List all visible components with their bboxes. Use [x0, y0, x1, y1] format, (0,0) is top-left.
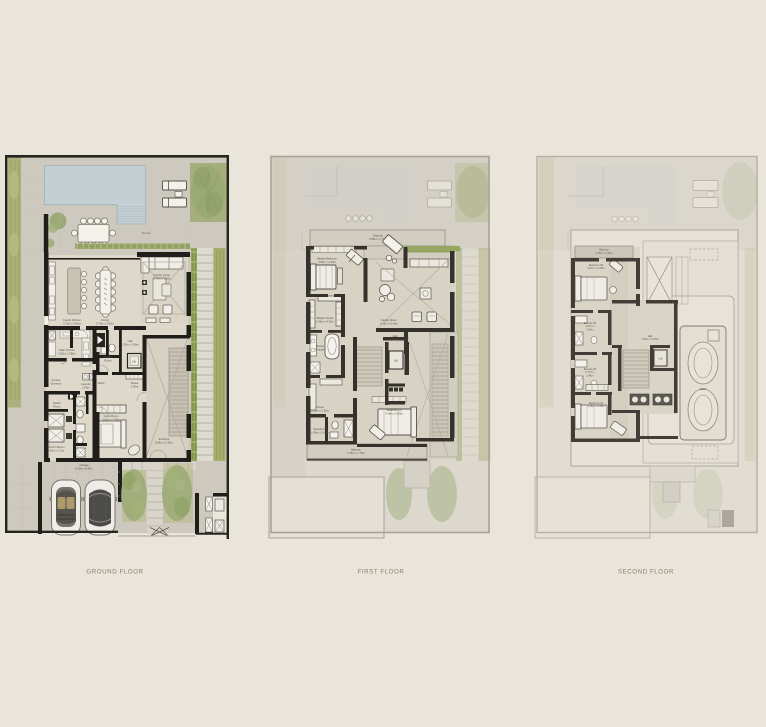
- svg-text:Wash: Wash: [98, 381, 105, 385]
- svg-text:2.46m: 2.46m: [586, 327, 593, 331]
- svg-text:Main Kitchen: Main Kitchen: [59, 348, 75, 352]
- svg-text:Master Closet: Master Closet: [317, 316, 334, 320]
- svg-text:2.00m x 2.2m: 2.00m x 2.2m: [48, 448, 65, 452]
- svg-text:1.80m x 2.35m: 1.80m x 2.35m: [311, 408, 330, 412]
- svg-text:3.07m x 4.45m: 3.07m x 4.45m: [587, 266, 604, 270]
- svg-text:Family Living: Family Living: [154, 273, 170, 277]
- svg-text:Lift: Lift: [658, 357, 662, 361]
- svg-text:Terrace: Terrace: [141, 231, 151, 235]
- svg-text:5.70m x 3.90m: 5.70m x 3.90m: [63, 321, 82, 325]
- svg-text:Lift: Lift: [132, 360, 136, 364]
- svg-text:Powder: Powder: [103, 355, 112, 359]
- svg-text:Entrance: Entrance: [51, 381, 62, 385]
- svg-text:1.90m x 2.65m: 1.90m x 2.65m: [311, 430, 330, 434]
- svg-text:Bedroom 03: Bedroom 03: [387, 408, 402, 412]
- svg-text:Balcony: Balcony: [351, 448, 361, 452]
- svg-text:Closet: Closet: [316, 405, 324, 409]
- svg-text:Hall: Hall: [128, 339, 133, 343]
- svg-text:5.70m x 3.90m: 5.70m x 3.90m: [153, 276, 172, 280]
- svg-text:Hall: Hall: [393, 334, 398, 338]
- svg-text:Lift: Lift: [394, 359, 398, 363]
- svg-text:GROUND FLOOR: GROUND FLOOR: [86, 569, 143, 576]
- svg-text:Guest Room: Guest Room: [103, 414, 119, 418]
- svg-text:1.90m x 5.45m: 1.90m x 5.45m: [641, 337, 658, 341]
- svg-text:1.90m x 7.45m: 1.90m x 7.45m: [390, 337, 409, 341]
- svg-text:Garage: Garage: [80, 463, 89, 467]
- svg-text:8.96m x 2.35m: 8.96m x 2.35m: [155, 440, 174, 444]
- svg-text:Balcony: Balcony: [373, 234, 383, 238]
- svg-text:Family Room: Family Room: [381, 318, 398, 322]
- svg-text:Maid's: Maid's: [53, 401, 61, 405]
- svg-text:Closet: Closet: [131, 381, 139, 385]
- svg-text:Ensuite 03: Ensuite 03: [314, 427, 327, 431]
- svg-text:Laundry: Laundry: [81, 382, 91, 386]
- svg-text:2.05m: 2.05m: [82, 385, 90, 389]
- svg-text:Driver's Room: Driver's Room: [48, 445, 66, 449]
- svg-text:Room: Room: [104, 358, 112, 362]
- svg-text:2.00m: 2.00m: [131, 384, 139, 388]
- svg-text:2.20m x 2.80m: 2.20m x 2.80m: [121, 342, 140, 346]
- svg-text:Dining: Dining: [101, 318, 109, 322]
- svg-text:Entrance: Entrance: [159, 437, 170, 441]
- svg-text:2.46m: 2.46m: [586, 373, 593, 377]
- svg-text:5.15m x 5.46m: 5.15m x 5.46m: [380, 321, 399, 325]
- svg-text:1.35m x 7.75m: 1.35m x 7.75m: [347, 451, 366, 455]
- svg-text:Master Bedroom: Master Bedroom: [317, 257, 338, 261]
- svg-text:SECOND FLOOR: SECOND FLOOR: [618, 569, 674, 576]
- svg-text:Family Kitchen: Family Kitchen: [63, 318, 81, 322]
- svg-text:FIRST FLOOR: FIRST FLOOR: [358, 569, 405, 576]
- svg-text:MEP: MEP: [700, 387, 707, 391]
- svg-text:Room: Room: [53, 404, 61, 408]
- svg-text:Master: Master: [316, 344, 324, 348]
- svg-text:3.46m x 4.45m: 3.46m x 4.45m: [587, 404, 604, 408]
- svg-text:Ensuite: Ensuite: [316, 347, 325, 351]
- svg-text:3.40m x 4.30m: 3.40m x 4.30m: [385, 411, 404, 415]
- svg-text:5.70m x 2.90m: 5.70m x 2.90m: [96, 321, 115, 325]
- svg-text:1.30m x 4.30m: 1.30m x 4.30m: [595, 251, 612, 255]
- svg-text:Service: Service: [52, 378, 61, 382]
- svg-text:2.48m x 4.25m: 2.48m x 4.25m: [316, 319, 335, 323]
- svg-text:3.05m x 4.45m: 3.05m x 4.45m: [102, 417, 121, 421]
- svg-text:3.95m x 4.35m: 3.95m x 4.35m: [318, 260, 337, 264]
- svg-text:3.05m x 3.85m: 3.05m x 3.85m: [58, 351, 77, 355]
